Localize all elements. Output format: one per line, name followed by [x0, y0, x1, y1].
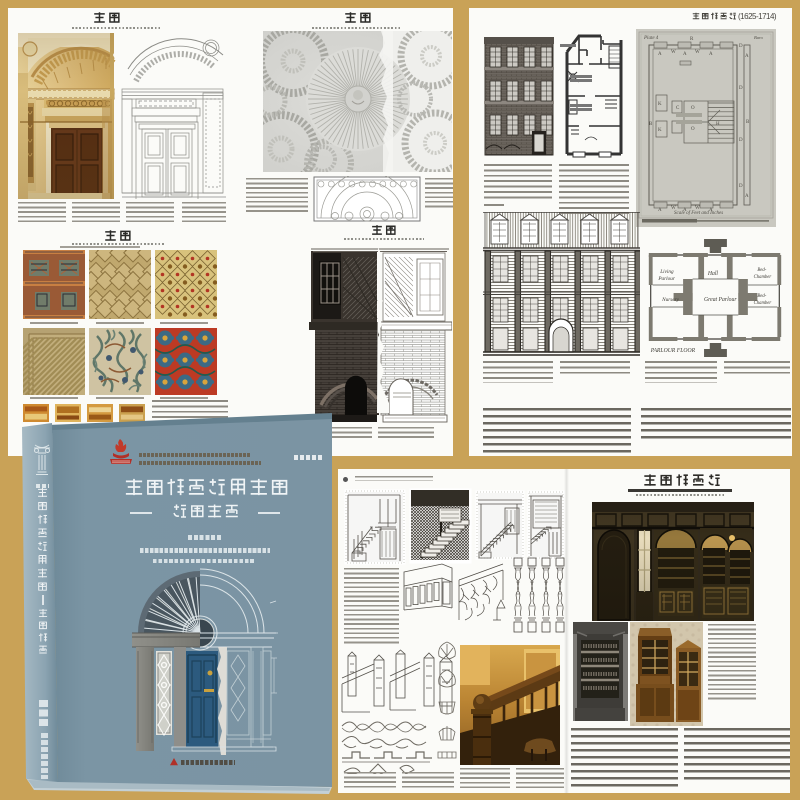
svg-text:O: O [691, 106, 695, 111]
svg-text:Great Parlour: Great Parlour [704, 297, 737, 303]
svg-text:A: A [658, 52, 662, 57]
svg-text:Chamber: Chamber [754, 275, 772, 280]
svg-text:K: K [658, 102, 662, 107]
svg-text:D: D [739, 44, 743, 49]
svg-text:W: W [671, 50, 676, 55]
svg-text:A: A [745, 194, 749, 199]
svg-text:A: A [709, 52, 713, 57]
svg-text:O: O [691, 127, 695, 132]
svg-text:Bed-: Bed- [757, 294, 766, 299]
svg-text:Baro: Baro [754, 35, 764, 40]
svg-text:Hall: Hall [707, 271, 718, 277]
svg-text:Scale of Feet and Inches: Scale of Feet and Inches [674, 211, 723, 216]
svg-text:A: A [745, 54, 749, 59]
svg-text:Living: Living [659, 269, 674, 275]
svg-text:W: W [695, 50, 700, 55]
svg-text:A: A [658, 208, 662, 213]
svg-text:Parlour: Parlour [657, 276, 675, 282]
svg-text:A: A [683, 52, 687, 57]
svg-text:Bed-: Bed- [757, 268, 766, 273]
svg-text:D: D [739, 86, 743, 91]
svg-text:D: D [739, 184, 743, 189]
svg-text:Nursery: Nursery [661, 297, 679, 303]
svg-text:Plate 4: Plate 4 [643, 36, 659, 41]
svg-text:Chamber: Chamber [754, 301, 772, 306]
svg-text:K: K [658, 128, 662, 133]
svg-text:H: H [716, 122, 720, 127]
svg-text:PARLOUR FLOOR: PARLOUR FLOOR [650, 348, 696, 354]
svg-text:D: D [739, 138, 743, 143]
